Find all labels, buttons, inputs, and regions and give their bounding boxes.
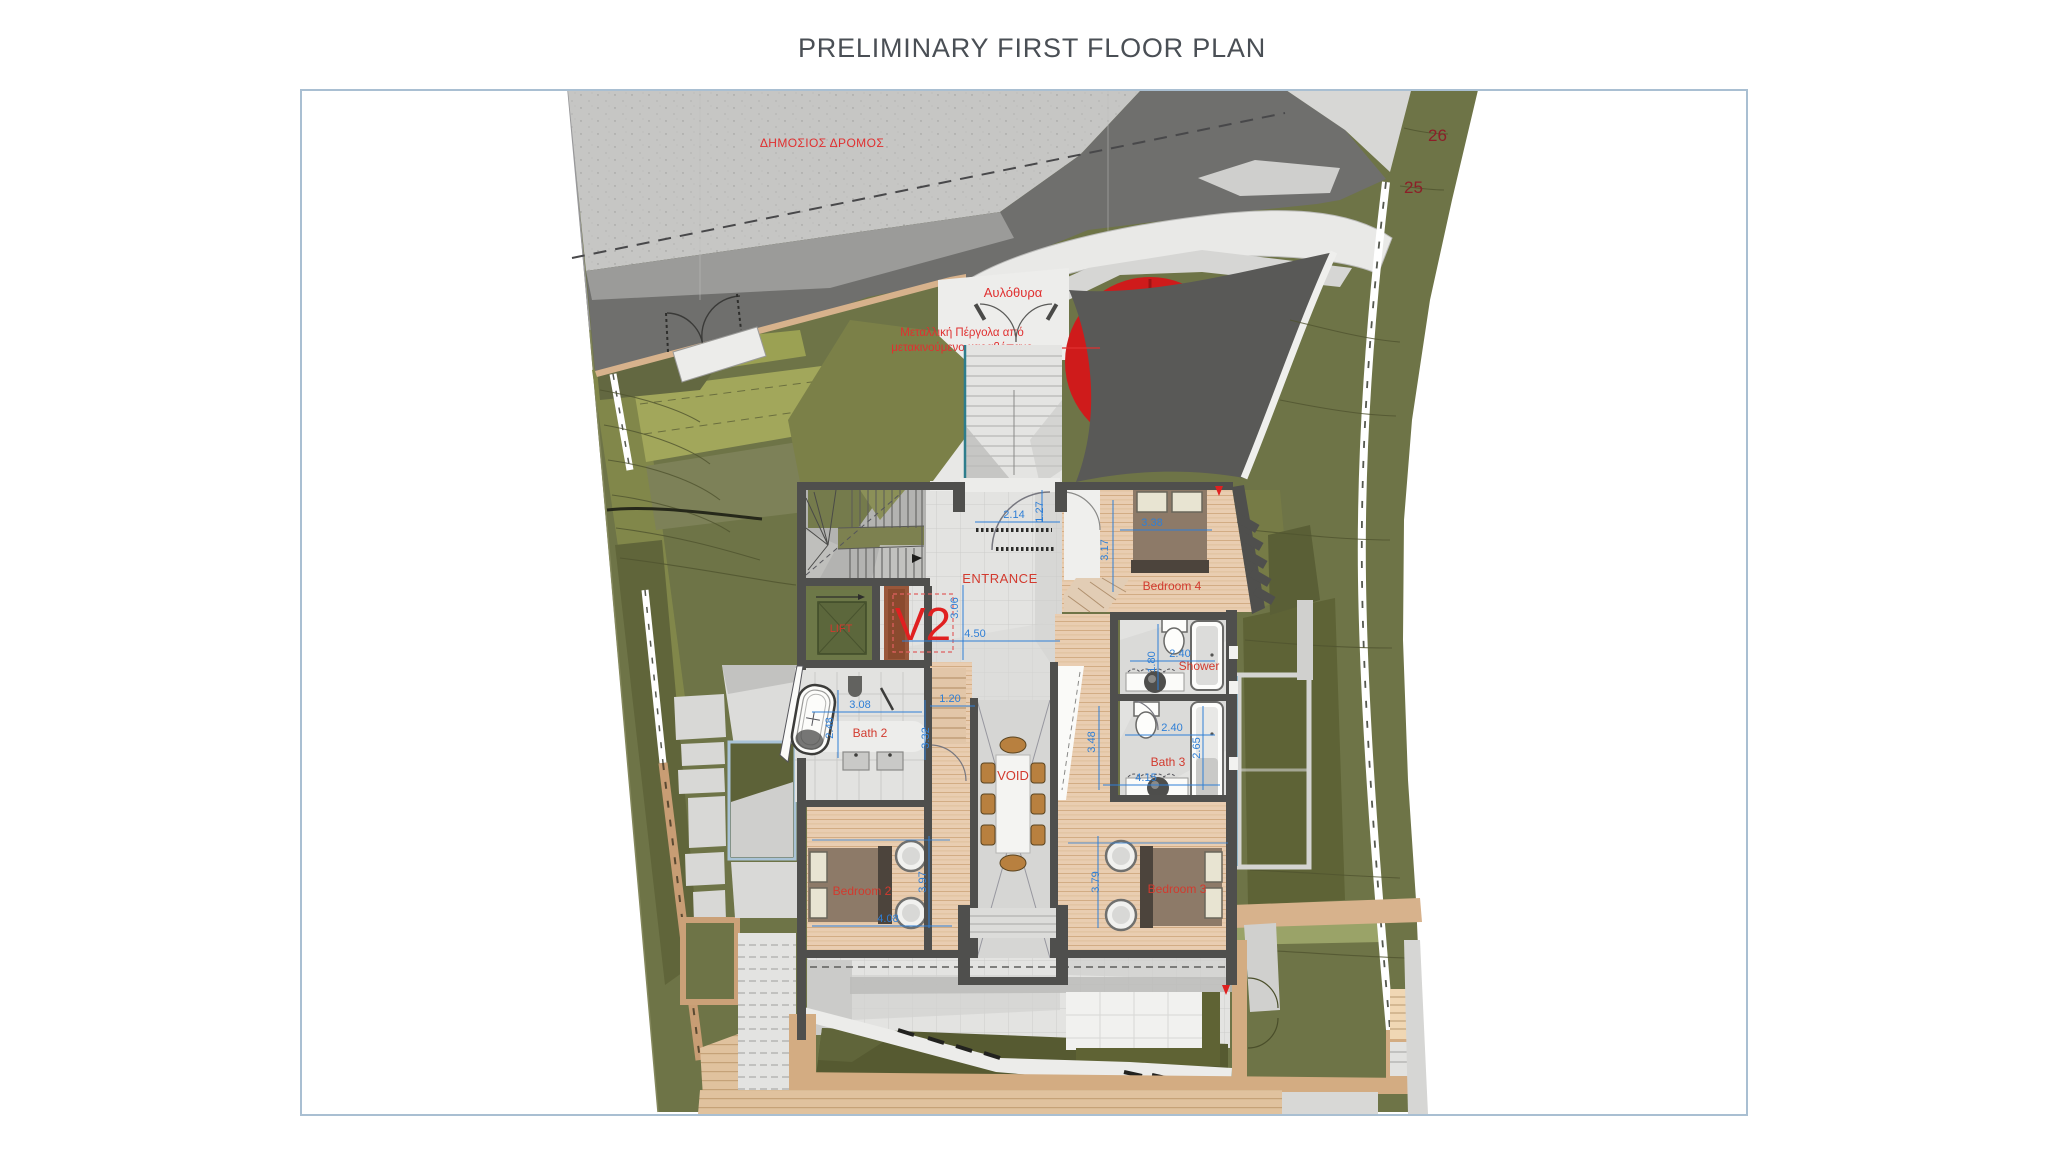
svg-text:3.38: 3.38: [1141, 517, 1162, 529]
svg-text:1.27: 1.27: [1034, 501, 1046, 522]
svg-text:4.08: 4.08: [877, 913, 898, 925]
svg-text:2.40: 2.40: [1161, 722, 1182, 734]
svg-text:2.65: 2.65: [1191, 737, 1203, 758]
svg-text:3.32: 3.32: [920, 727, 932, 748]
svg-text:25: 25: [1404, 178, 1423, 197]
svg-text:Bedroom 4: Bedroom 4: [1143, 579, 1202, 593]
svg-text:Bath 3: Bath 3: [1151, 755, 1186, 769]
svg-text:2.40: 2.40: [1169, 648, 1190, 660]
svg-text:V2: V2: [895, 598, 951, 650]
svg-text:1.80: 1.80: [1146, 651, 1158, 672]
svg-text:Αυλόθυρα: Αυλόθυρα: [984, 285, 1043, 300]
svg-text:ΔΗΜΟΣΙΟΣ ΔΡΟΜΟΣ: ΔΗΜΟΣΙΟΣ ΔΡΟΜΟΣ: [760, 136, 884, 150]
svg-text:2.48: 2.48: [824, 717, 836, 738]
svg-text:2.14: 2.14: [1003, 509, 1024, 521]
svg-text:1.20: 1.20: [939, 693, 960, 705]
svg-text:3.17: 3.17: [1099, 539, 1111, 560]
svg-text:4.15: 4.15: [1135, 772, 1156, 784]
svg-text:3.48: 3.48: [1086, 731, 1098, 752]
svg-text:Bedroom 2: Bedroom 2: [833, 884, 892, 898]
svg-text:3.79: 3.79: [1090, 871, 1102, 892]
svg-text:26: 26: [1428, 126, 1447, 145]
svg-text:Bath 2: Bath 2: [853, 726, 888, 740]
svg-text:LIFT: LIFT: [830, 623, 853, 635]
svg-text:ENTRANCE: ENTRANCE: [962, 571, 1038, 586]
svg-text:3.97: 3.97: [917, 871, 929, 892]
svg-text:VOID: VOID: [997, 768, 1029, 783]
svg-text:Bedroom 3: Bedroom 3: [1148, 882, 1207, 896]
svg-text:3.08: 3.08: [849, 699, 870, 711]
svg-text:4.50: 4.50: [964, 628, 985, 640]
svg-text:3.06: 3.06: [949, 597, 961, 618]
svg-text:Μεταλλική Πέργολα από: Μεταλλική Πέργολα από: [900, 327, 1023, 339]
svg-text:PRELIMINARY FIRST FLOOR PLAN: PRELIMINARY FIRST FLOOR PLAN: [798, 33, 1266, 63]
